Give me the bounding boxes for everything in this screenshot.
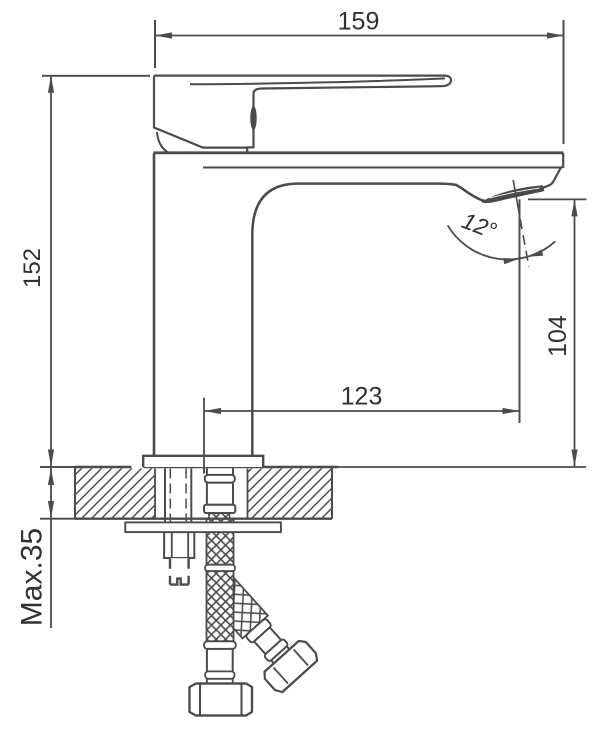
svg-text:123: 123 xyxy=(341,383,383,411)
svg-text:152: 152 xyxy=(19,248,46,288)
svg-text:Max.35: Max.35 xyxy=(16,528,49,626)
svg-text:159: 159 xyxy=(338,8,380,36)
svg-text:104: 104 xyxy=(544,315,572,357)
